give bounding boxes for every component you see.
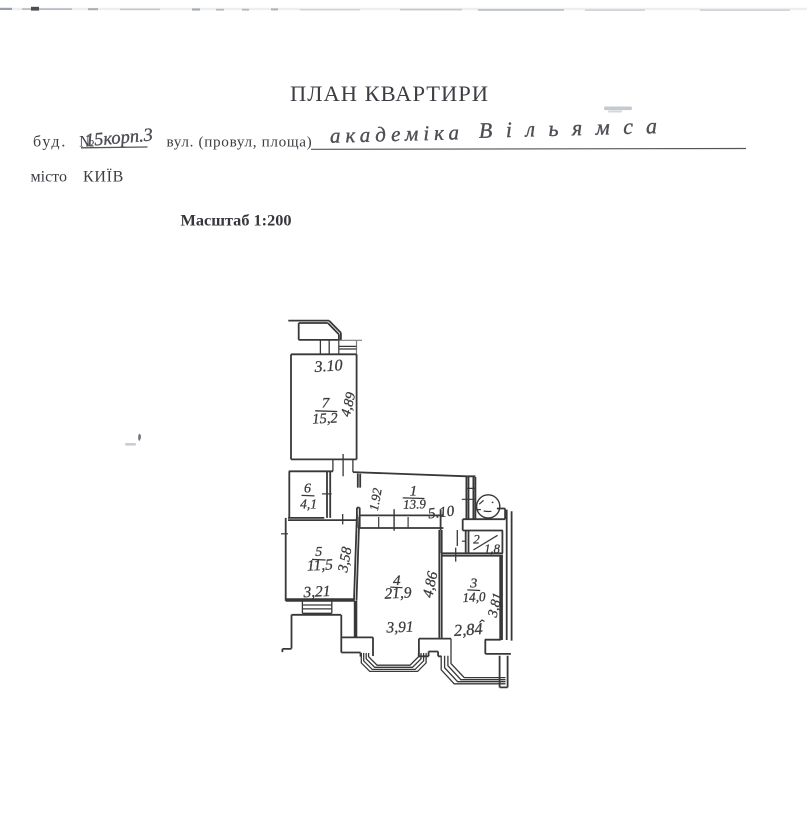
svg-text:Масштаб 1:200: Масштаб 1:200 [181,211,292,230]
svg-text:3,58: 3,58 [335,545,355,574]
svg-text:4,1: 4,1 [300,497,317,512]
svg-text:4,86: 4,86 [420,570,441,599]
svg-text:1,8: 1,8 [484,542,500,556]
svg-text:2,84: 2,84 [453,619,483,640]
svg-text:15,2: 15,2 [312,410,338,427]
svg-text:1.92: 1.92 [366,486,385,512]
svg-text:Вільямса: Вільямса [479,113,671,143]
svg-text:6: 6 [304,482,311,497]
svg-text:місто: місто [31,169,67,186]
svg-text:академіка: академіка [330,120,465,147]
svg-text:11,5: 11,5 [306,556,333,574]
svg-text:2: 2 [473,532,480,547]
svg-text:3,81: 3,81 [485,591,506,619]
svg-text:КИЇВ: КИЇВ [83,168,124,186]
svg-text:3,91: 3,91 [385,619,414,637]
svg-text:ПЛАН КВАРТИРИ: ПЛАН КВАРТИРИ [290,81,489,106]
svg-text:3,21: 3,21 [302,583,331,601]
svg-text:5.10: 5.10 [427,503,456,522]
svg-text:14,0: 14,0 [462,589,486,605]
svg-text:вул. (провул, площа): вул. (провул, площа) [167,134,313,151]
svg-text:7: 7 [322,396,331,412]
svg-text:3.10: 3.10 [313,357,343,376]
